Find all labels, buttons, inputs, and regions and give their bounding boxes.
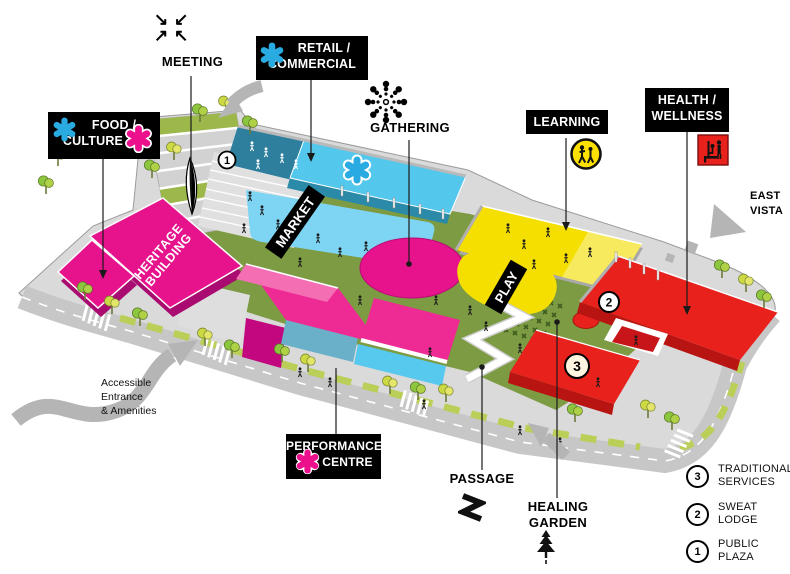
- svg-text:3: 3: [573, 358, 581, 374]
- label-accessible-entrance: Accessible Entrance & Amenities: [101, 377, 156, 419]
- marker-public-plaza: 1: [219, 152, 236, 169]
- legend-item-label: PUBLICPLAZA: [718, 538, 759, 564]
- legend-number-badge: 1: [686, 540, 709, 563]
- label-performance-centre: PERFORMANCE CENTRE: [286, 434, 381, 479]
- site-plan-drawing: MARKET PLAY HERITAGE BUILDING 1 2 3: [0, 0, 790, 574]
- asterisk-icon: [348, 160, 365, 180]
- marker-traditional-services: 3: [565, 354, 589, 378]
- asterisk-icon: [124, 124, 153, 153]
- label-passage: PASSAGE: [448, 471, 516, 486]
- legend-number-badge: 3: [686, 465, 709, 488]
- gathering-circle: [360, 238, 464, 298]
- label-learning: LEARNING: [526, 110, 608, 134]
- marker-sweat-lodge: 2: [599, 292, 619, 312]
- label-retail-commercial: RETAIL / COMMERCIAL: [256, 36, 368, 80]
- svg-text:1: 1: [224, 155, 230, 167]
- legend-item-label: SWEATLODGE: [718, 501, 758, 527]
- arrow-glyph: ↗: [154, 28, 170, 44]
- legend-item-sweat-lodge: 2 SWEATLODGE: [686, 501, 758, 527]
- label-meeting: MEETING: [150, 54, 235, 69]
- svg-text:2: 2: [606, 296, 613, 310]
- label-health-wellness: HEALTH / WELLNESS: [645, 88, 729, 132]
- label-food-culture: FOOD / CULTURE: [48, 112, 160, 159]
- legend-number-badge: 2: [686, 503, 709, 526]
- legend-item-label: TRADITIONALSERVICES: [718, 463, 790, 489]
- converge-arrows-icon: ↘ ↙ ↗ ↖: [154, 12, 190, 44]
- label-healing-garden: HEALING GARDEN: [526, 499, 590, 532]
- asterisk-icon: [295, 449, 320, 474]
- legend-item-public-plaza: 1 PUBLICPLAZA: [686, 538, 759, 564]
- legend-item-traditional-services: 3 TRADITIONALSERVICES: [686, 463, 790, 489]
- label-east-vista: EAST VISTA: [750, 189, 783, 220]
- asterisk-icon: [52, 117, 77, 142]
- asterisk-icon: [259, 42, 285, 68]
- label-gathering: GATHERING: [352, 120, 468, 135]
- starburst-icon: [365, 81, 407, 123]
- site-plan-diagram: MARKET PLAY HERITAGE BUILDING 1 2 3 ↘ ↙ …: [0, 0, 790, 574]
- arrow-glyph: ↖: [174, 28, 190, 44]
